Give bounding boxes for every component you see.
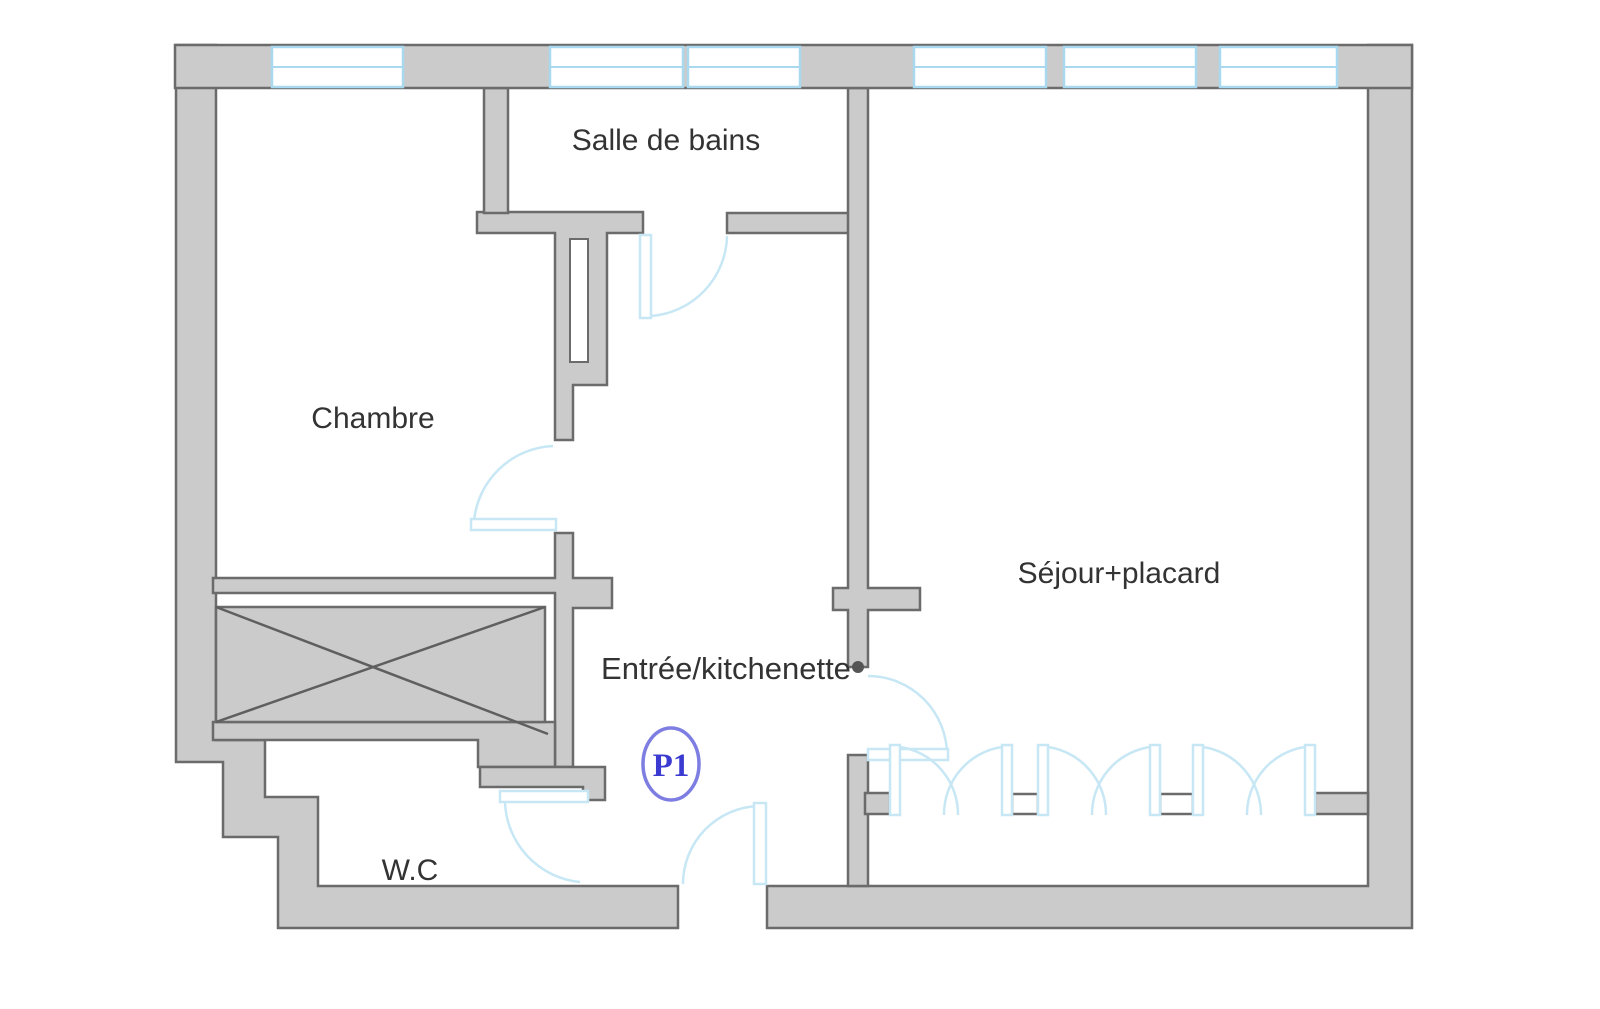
room-label-wc: W.C — [382, 854, 439, 887]
wall-bathroom-bottom-right — [727, 213, 850, 233]
closet-post-right — [1315, 793, 1368, 814]
door-wc — [500, 791, 588, 882]
room-label-bedroom: Chambre — [311, 402, 434, 435]
door-bedroom — [471, 446, 556, 530]
door-bathroom — [640, 235, 727, 318]
shaft-box — [216, 607, 548, 734]
door-hinge-dot — [852, 661, 864, 673]
closet-doors-bay-2 — [1038, 745, 1160, 815]
window-living-3 — [1220, 47, 1337, 87]
wall-entry-living-lower — [848, 755, 868, 886]
door-entrance — [683, 803, 766, 884]
window-bathroom-2 — [688, 47, 800, 87]
duct-slot — [570, 239, 588, 362]
window-bedroom — [272, 47, 403, 87]
room-label-entry: Entrée/kitchenette — [601, 651, 851, 686]
window-bathroom-1 — [550, 47, 683, 87]
door-tag-p1: P1 — [643, 728, 699, 800]
room-label-bathroom: Salle de bains — [572, 124, 760, 157]
closet-doors-bay-3 — [1193, 745, 1315, 815]
closet-post-mid-1 — [1012, 794, 1038, 814]
floor-plan-svg: Salle de bains Chambre Séjour+placard En… — [0, 0, 1600, 1009]
closet-post-left — [865, 793, 890, 814]
closet-post-mid-2 — [1160, 794, 1193, 814]
room-labels: Salle de bains Chambre Séjour+placard En… — [311, 124, 1220, 887]
wall-entry-living-upper — [833, 88, 920, 667]
wall-bathroom-left — [484, 88, 508, 213]
walls — [176, 45, 1412, 928]
floor-plan-canvas: Salle de bains Chambre Séjour+placard En… — [0, 0, 1600, 1009]
window-living-1 — [914, 47, 1046, 87]
room-label-living: Séjour+placard — [1018, 557, 1221, 590]
wall-bathroom-bottom-left — [477, 212, 643, 440]
window-living-2 — [1064, 47, 1196, 87]
door-tag-label: P1 — [653, 748, 690, 784]
